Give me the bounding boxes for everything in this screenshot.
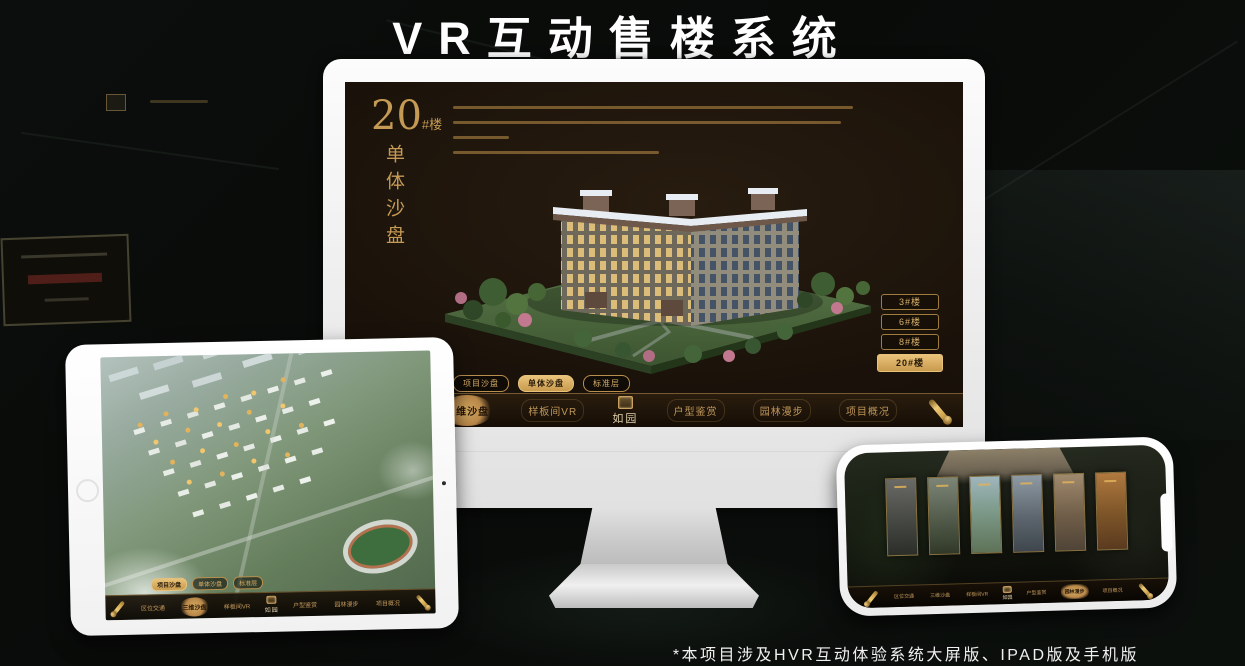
aerial-residential-blocks xyxy=(133,427,145,435)
tablet-camera-icon xyxy=(442,481,446,485)
brand-logo: 如园 xyxy=(612,396,638,426)
panel-subtitle-vertical: 单体沙盘 xyxy=(381,144,408,276)
nav-item-garden-walk[interactable]: 园林漫步 xyxy=(331,596,361,610)
scroll-handle-icon[interactable] xyxy=(1138,582,1152,597)
nav-item-model-room-vr[interactable]: 样板间VR xyxy=(964,588,990,600)
brand-logo-text: 如园 xyxy=(1002,594,1012,601)
phone-device: 区位交通 三维沙盘 样板间VR 如园 户型鉴赏 园林漫步 项目概况 xyxy=(836,436,1178,616)
nav-item-location[interactable]: 区位交通 xyxy=(892,591,916,603)
brand-logo-text: 如园 xyxy=(265,605,279,614)
gallery-panel[interactable] xyxy=(969,475,1002,554)
gallery-panel[interactable] xyxy=(927,476,960,555)
background-gold-seal xyxy=(106,94,126,111)
brand-logo: 如园 xyxy=(264,596,278,614)
monitor-stand-base xyxy=(549,564,759,608)
tab-project-sandbox[interactable]: 项目沙盘 xyxy=(453,375,509,392)
tab-single-building-sandbox[interactable]: 单体沙盘 xyxy=(518,375,574,392)
cloud-mist xyxy=(377,440,436,501)
gallery-panel[interactable] xyxy=(1095,472,1128,551)
brand-seal-icon xyxy=(266,596,276,604)
nav-item-floorplans[interactable]: 户型鉴赏 xyxy=(290,597,320,611)
sandbox-sub-tabs: 项目沙盘 单体沙盘 标准层 xyxy=(453,375,630,392)
scroll-handle-icon[interactable] xyxy=(865,590,878,605)
tablet-screen: 项目沙盘 单体沙盘 标准层 区位交通 三维沙盘 样板间VR 如园 户型鉴赏 园林… xyxy=(100,350,435,620)
nav-item-project-overview[interactable]: 项目概况 xyxy=(1100,585,1124,597)
floor-selector: 3#楼 6#楼 8#楼 20#楼 xyxy=(881,294,939,372)
promo-poster: VR互动售楼系统 20#楼 单体沙盘 xyxy=(0,0,1245,666)
nav-item-floorplans[interactable]: 户型鉴赏 xyxy=(1024,587,1048,599)
floor-button-6[interactable]: 6#楼 xyxy=(881,314,939,330)
gallery-panel[interactable] xyxy=(1053,473,1086,552)
aerial-road xyxy=(231,350,295,611)
tablet-sub-tabs: 项目沙盘 单体沙盘 标准层 xyxy=(151,576,263,591)
monitor-stand-neck xyxy=(579,507,729,571)
brand-logo-text: 如园 xyxy=(612,410,638,426)
tab-project-sandbox[interactable]: 项目沙盘 xyxy=(151,578,187,592)
tablet-home-button[interactable] xyxy=(76,478,99,501)
scroll-handle-icon[interactable] xyxy=(112,601,125,616)
phone-notch xyxy=(1160,493,1173,551)
nav-item-location[interactable]: 区位交通 xyxy=(138,600,168,614)
scroll-handle-icon[interactable] xyxy=(928,398,951,423)
nav-item-3d-sandbox[interactable]: 三维沙盘 xyxy=(179,597,209,617)
phone-screen: 区位交通 三维沙盘 样板间VR 如园 户型鉴赏 园林漫步 项目概况 xyxy=(844,445,1169,609)
floor-button-3[interactable]: 3#楼 xyxy=(881,294,939,310)
building-number-suffix: #楼 xyxy=(422,117,442,132)
gallery-panel[interactable] xyxy=(885,478,918,557)
background-gold-label xyxy=(150,100,208,103)
building-panel-title: 20#楼 单体沙盘 xyxy=(371,96,442,276)
gallery-panel[interactable] xyxy=(1011,474,1044,553)
building-3d-model[interactable] xyxy=(433,142,885,380)
brand-logo: 如园 xyxy=(1002,586,1012,601)
nav-item-garden-walk[interactable]: 园林漫步 xyxy=(753,399,811,422)
floor-button-8[interactable]: 8#楼 xyxy=(881,334,939,350)
nav-item-3d-sandbox[interactable]: 三维沙盘 xyxy=(928,590,952,602)
stadium xyxy=(337,511,424,581)
page-title: VR互动售楼系统 xyxy=(0,2,1245,67)
tab-single-building-sandbox[interactable]: 单体沙盘 xyxy=(192,577,228,591)
nav-item-model-room-vr[interactable]: 样板间VR xyxy=(221,599,254,613)
background-photo xyxy=(980,170,1245,440)
nav-item-floorplans[interactable]: 户型鉴赏 xyxy=(667,399,725,422)
background-map-line xyxy=(21,132,279,170)
brand-seal-icon xyxy=(1003,586,1012,593)
aerial-industrial-blocks xyxy=(108,367,139,383)
nav-item-project-overview[interactable]: 项目概况 xyxy=(839,399,897,422)
nav-item-garden-walk[interactable]: 园林漫步 xyxy=(1060,584,1088,600)
background-certificate-plaque xyxy=(1,234,132,326)
footnote-text: *本项目涉及HVR互动体验系统大屏版、IPAD版及手机版 xyxy=(673,641,1139,665)
tab-standard-floor[interactable]: 标准层 xyxy=(233,576,263,590)
nav-item-project-overview[interactable]: 项目概况 xyxy=(373,596,403,610)
nav-item-model-room-vr[interactable]: 样板间VR xyxy=(521,399,584,422)
floor-button-20[interactable]: 20#楼 xyxy=(877,354,943,372)
tablet-device: 项目沙盘 单体沙盘 标准层 区位交通 三维沙盘 样板间VR 如园 户型鉴赏 园林… xyxy=(65,337,459,636)
scroll-handle-icon[interactable] xyxy=(416,594,430,609)
tab-standard-floor[interactable]: 标准层 xyxy=(583,375,630,392)
scene-gallery xyxy=(885,472,1128,557)
building-number: 20 xyxy=(371,93,422,139)
brand-seal-icon xyxy=(618,396,633,409)
